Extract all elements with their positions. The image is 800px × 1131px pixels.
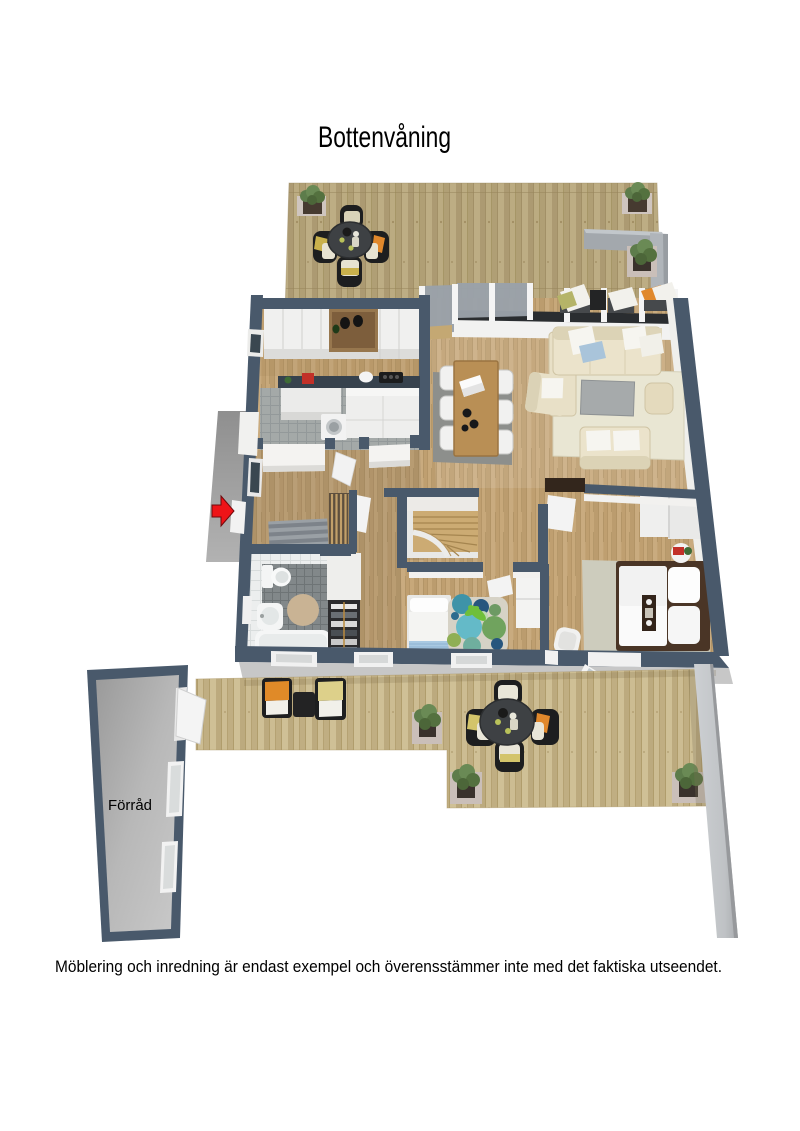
svg-text:Förråd: Förråd — [108, 797, 152, 814]
svg-text:Bottenvåning: Bottenvåning — [318, 121, 451, 154]
svg-text:Möblering och inredning är end: Möblering och inredning är endast exempe… — [55, 958, 722, 976]
